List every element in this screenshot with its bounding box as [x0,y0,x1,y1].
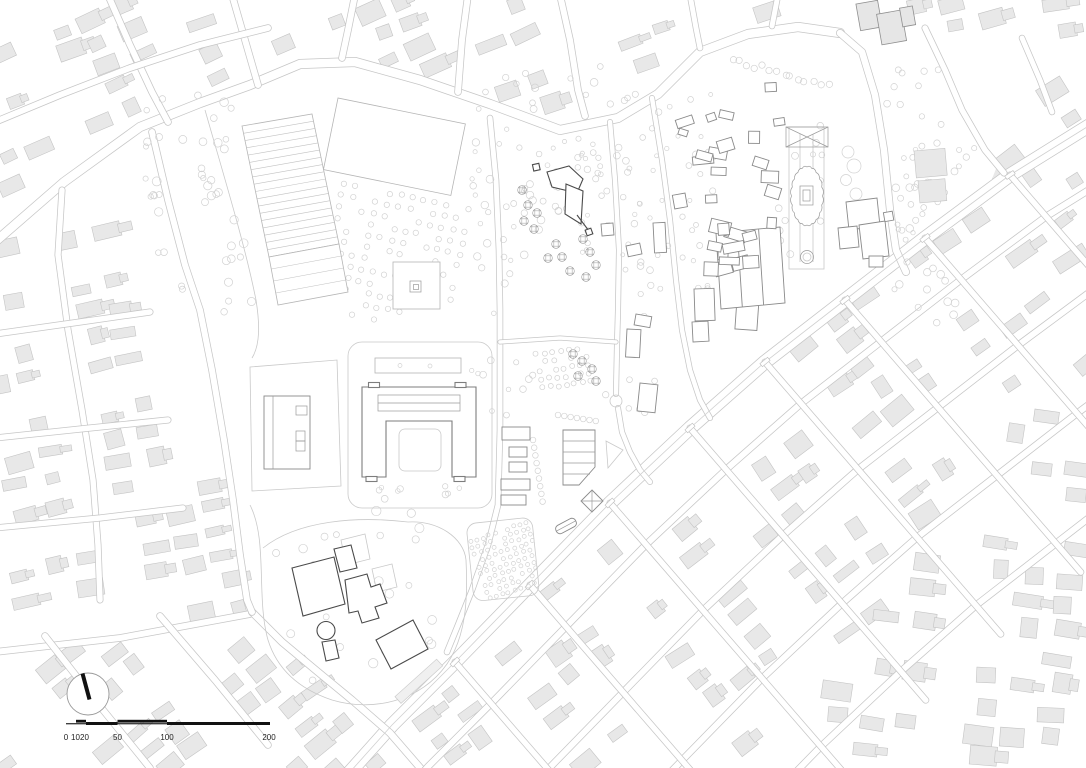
sports-field [323,98,465,195]
scale-seg-50-100 [118,720,168,723]
shrine-fountain [801,251,814,264]
south-block-rotunda [317,622,335,640]
site-plan-canvas: 0 10 20 50 100 200 [0,0,1086,768]
south-block-a [292,557,345,616]
scale-seg-10-20 [76,720,86,723]
annex [509,447,527,457]
shrine-gate-braces [786,127,828,147]
east-block [883,211,893,221]
annex [501,495,526,505]
west-building-footprint [264,396,310,469]
terraced-block-outline [563,430,595,485]
main-building-footprint [362,387,476,477]
south-block-wing [345,574,387,623]
buildings-gray-east [914,148,947,203]
annex [502,427,530,440]
site-plan-svg: 0 10 20 50 100 200 [0,0,1086,768]
annex-buildings-east [501,427,530,505]
south-block-b [334,545,357,572]
north-cluster-hut [532,163,540,171]
gray-slab [914,148,947,178]
scale-label-50: 50 [113,733,122,742]
east-building-complex [838,198,894,267]
annex [509,462,527,472]
scale-label-200: 200 [262,733,276,742]
main-courtyard-building [362,383,476,482]
west-building [264,396,310,469]
gray-slab [918,179,947,203]
east-block [869,256,883,267]
east-block [859,221,889,259]
stair-tab [366,477,377,482]
north-cluster-hut [585,228,593,236]
shrine-complex [786,127,828,269]
stair-tab [369,383,380,388]
stair-tab [454,477,465,482]
terraced-block-southeast [563,430,595,485]
plaza-triangle [606,441,623,468]
ne-block [900,6,916,27]
annex [501,479,530,490]
pavilion-square-building [393,262,440,309]
scale-label-0: 0 [64,733,69,742]
scale-seg-20-50 [86,722,118,725]
canopy-building [375,358,461,373]
east-block [838,226,859,249]
south-building-complex [292,545,428,669]
courtyard-garden [399,429,441,471]
south-block-d [376,620,428,669]
north-arrow [67,673,109,715]
canopy-outline [375,358,461,373]
scale-seg-100-200 [167,722,270,725]
shrine-fountain-inner [803,253,811,261]
scale-label-100: 100 [160,733,174,742]
north-cluster-b [565,184,583,224]
pavilion-outline [393,262,440,309]
shrine-scalloped-court [791,166,824,225]
scale-label-20: 20 [80,733,89,742]
south-block-f [322,640,339,661]
stair-tab [455,383,466,388]
